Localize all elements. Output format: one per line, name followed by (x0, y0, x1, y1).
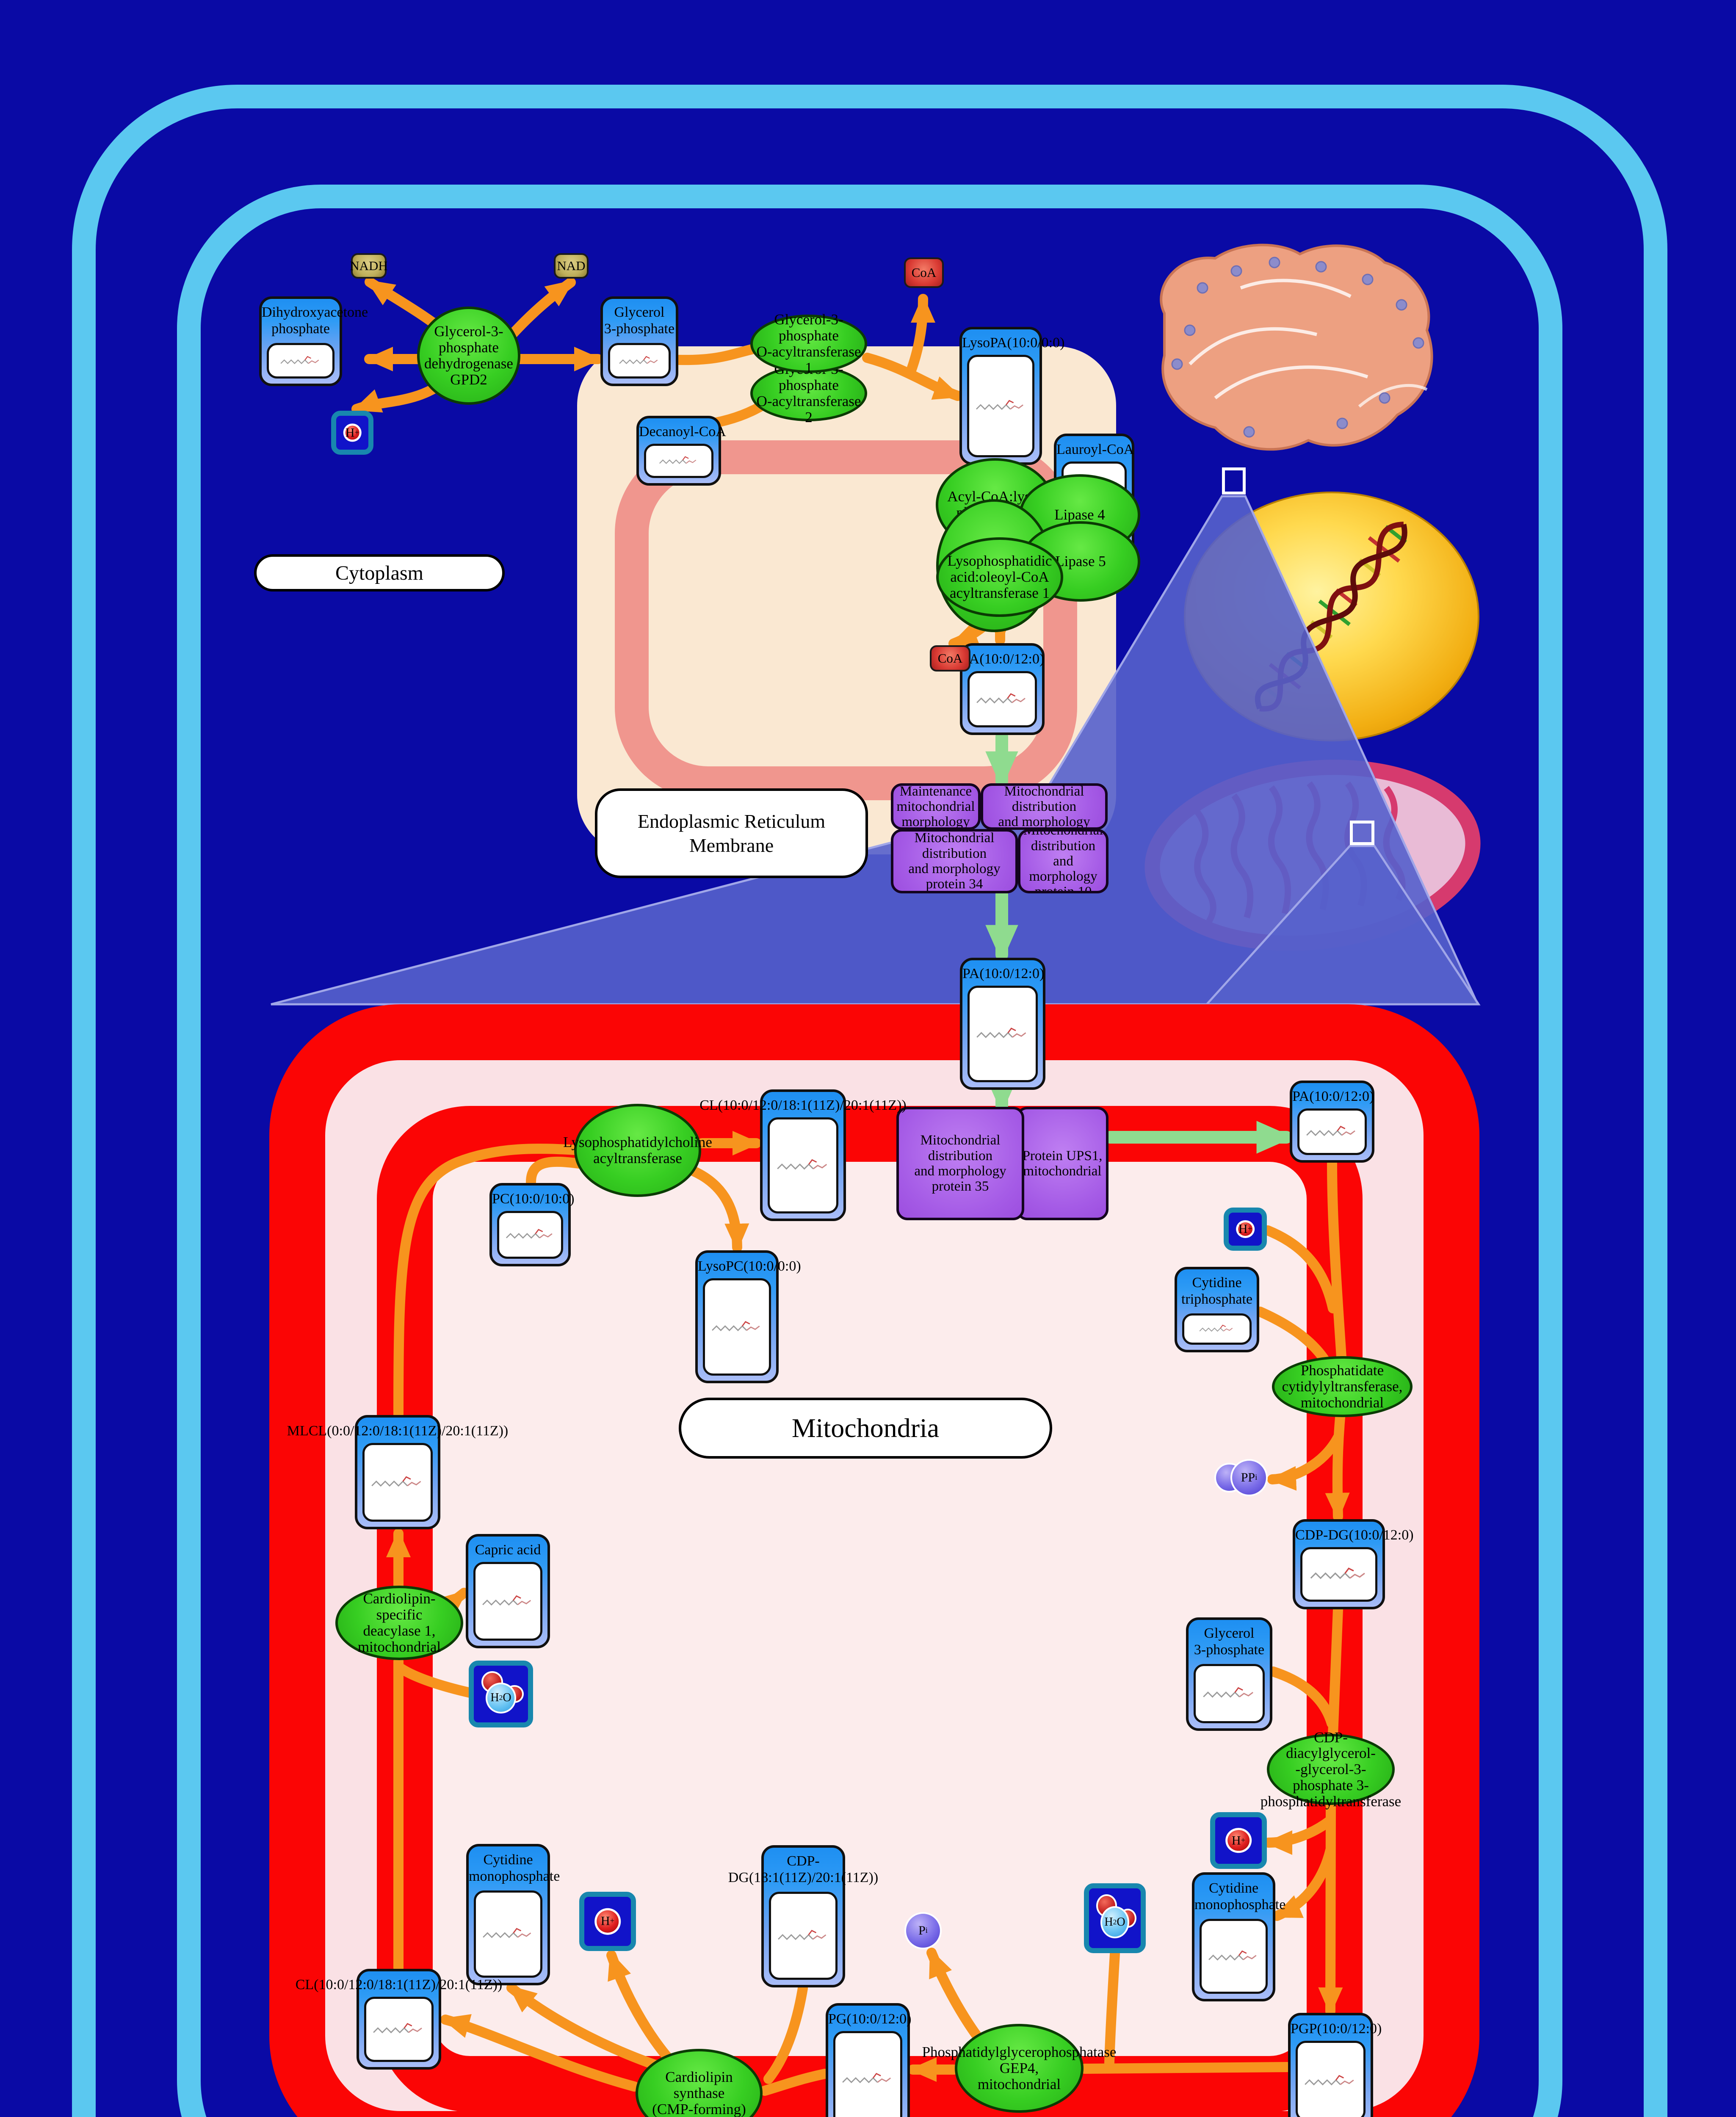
cytoplasm-label: Cytoplasm (254, 554, 505, 591)
pathway-canvas: MaintenancemitochondrialmorphologyMitoch… (0, 0, 1736, 2117)
region-label-line: Membrane (689, 833, 774, 858)
region-label-line: Endoplasmic Reticulum (638, 809, 825, 834)
er-membrane-label: Endoplasmic ReticulumMembrane (595, 788, 868, 878)
region-label-line: Cytoplasm (335, 561, 423, 585)
region-label-layer: Cytoplasm Endoplasmic ReticulumMembrane … (0, 0, 1736, 2117)
mitochondria-label: Mitochondria (679, 1398, 1052, 1459)
region-label-line: Mitochondria (792, 1412, 939, 1444)
